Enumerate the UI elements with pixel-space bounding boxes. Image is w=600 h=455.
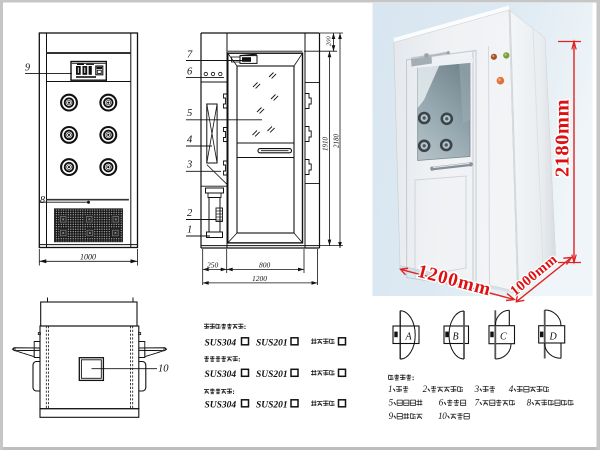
svg-text:D: D [549,332,558,343]
svg-text:8: 8 [40,195,45,206]
svg-text:7: 7 [187,50,193,61]
svg-text:A: A [405,332,413,343]
svg-text:0: 0 [442,411,447,421]
svg-text:2: 2 [187,208,193,219]
svg-text:1: 1 [187,225,192,236]
svg-text:SUS304: SUS304 [205,370,237,380]
svg-text:1: 1 [388,384,393,394]
svg-text:2180: 2180 [333,134,341,149]
svg-text:7: 7 [475,398,480,408]
svg-text:3: 3 [186,160,192,171]
svg-text:9: 9 [25,63,30,74]
svg-text:SUS304: SUS304 [205,401,237,411]
svg-text:10: 10 [158,364,169,375]
svg-text:5: 5 [389,398,394,408]
svg-text:4: 4 [187,135,193,146]
svg-text:200: 200 [326,36,333,47]
svg-text:1000: 1000 [80,253,96,262]
svg-text:B: B [453,332,459,343]
svg-text:C: C [500,332,507,343]
svg-text:250: 250 [207,261,219,270]
svg-text:8: 8 [527,398,532,408]
svg-text:6: 6 [439,398,444,408]
svg-text:1200: 1200 [252,274,267,283]
svg-text:3: 3 [474,384,480,394]
svg-text:4: 4 [509,384,514,394]
svg-text:SUS201: SUS201 [256,401,288,411]
svg-text:2180mm: 2180mm [552,99,574,177]
svg-text:5: 5 [187,108,192,119]
svg-text:SUS304: SUS304 [205,339,237,349]
svg-text:1910: 1910 [322,137,330,152]
svg-text:9: 9 [389,411,394,421]
svg-text:800: 800 [259,261,271,270]
svg-text:6: 6 [187,67,193,78]
svg-text:SUS201: SUS201 [256,370,288,380]
svg-text:2: 2 [423,384,428,394]
svg-text:SUS201: SUS201 [256,339,288,349]
